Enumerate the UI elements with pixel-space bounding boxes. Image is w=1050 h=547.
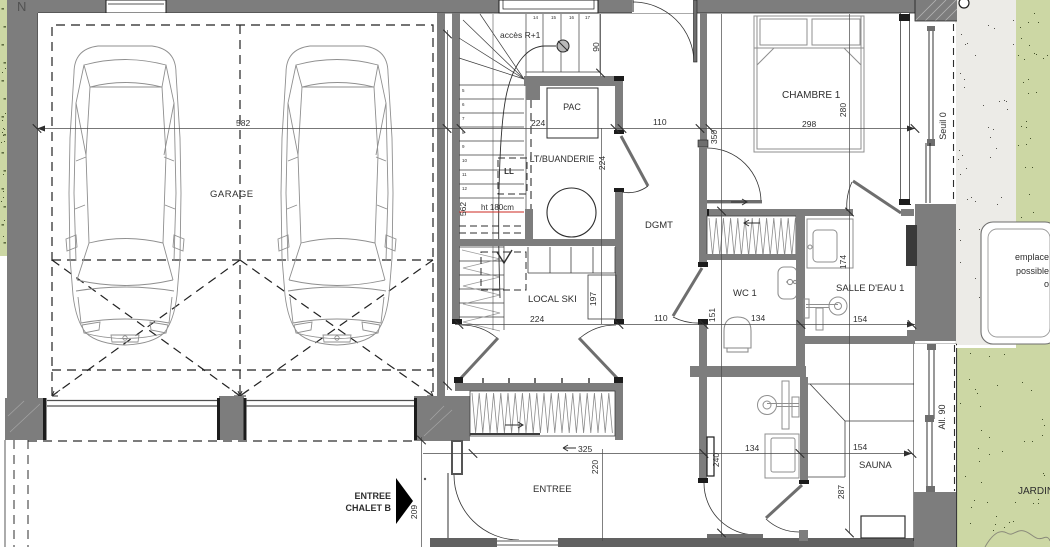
svg-text:CHALET B: CHALET B	[346, 503, 392, 513]
svg-text:220: 220	[590, 460, 600, 474]
svg-text:14: 14	[533, 15, 539, 20]
svg-text:emplace: emplace	[1015, 252, 1049, 262]
svg-text:17: 17	[585, 15, 591, 20]
svg-text:110: 110	[653, 117, 667, 127]
svg-text:15: 15	[551, 15, 557, 20]
svg-text:90: 90	[591, 42, 601, 52]
svg-text:ht 180cm: ht 180cm	[481, 203, 514, 212]
svg-text:16: 16	[569, 15, 575, 20]
svg-text:134: 134	[751, 313, 765, 323]
svg-text:10: 10	[462, 158, 468, 163]
svg-text:287: 287	[836, 485, 846, 499]
svg-text:174: 174	[838, 255, 848, 269]
svg-text:224: 224	[597, 156, 607, 170]
svg-text:LT/BUANDERIE: LT/BUANDERIE	[530, 154, 595, 164]
svg-text:SALLE D'EAU 1: SALLE D'EAU 1	[836, 283, 904, 294]
svg-text:224: 224	[531, 118, 545, 128]
svg-text:CHAMBRE 1: CHAMBRE 1	[782, 90, 841, 101]
svg-text:DGMT: DGMT	[645, 220, 673, 231]
svg-text:ENTREE: ENTREE	[354, 491, 391, 501]
svg-text:224: 224	[530, 314, 544, 324]
svg-text:LL: LL	[504, 167, 514, 176]
svg-text:possible: possible	[1016, 266, 1049, 276]
svg-text:11: 11	[462, 172, 467, 177]
svg-text:PAC: PAC	[563, 102, 581, 112]
svg-text:GARAGE: GARAGE	[210, 189, 254, 200]
svg-text:325: 325	[578, 444, 592, 454]
svg-text:197: 197	[588, 292, 598, 306]
svg-text:JARDIN: JARDIN	[1018, 486, 1050, 497]
svg-text:151: 151	[707, 308, 717, 322]
svg-text:N: N	[17, 0, 26, 14]
svg-text:All. 90: All. 90	[937, 404, 947, 429]
svg-text:134: 134	[745, 443, 759, 453]
svg-text:154: 154	[853, 314, 867, 324]
svg-text:SAUNA: SAUNA	[859, 460, 892, 471]
svg-text:accès R+1: accès R+1	[500, 30, 541, 40]
svg-text:Seuil 0: Seuil 0	[938, 112, 948, 140]
svg-text:298: 298	[802, 119, 816, 129]
svg-text:o: o	[1044, 279, 1049, 289]
svg-text:350: 350	[709, 130, 719, 144]
svg-text:154: 154	[853, 442, 867, 452]
svg-text:WC 1: WC 1	[733, 288, 757, 299]
svg-text:562: 562	[458, 202, 468, 216]
svg-text:582: 582	[236, 118, 250, 128]
svg-text:110: 110	[654, 313, 668, 323]
svg-text:ENTREE: ENTREE	[533, 484, 572, 495]
svg-text:240: 240	[711, 453, 721, 467]
svg-text:280: 280	[838, 103, 848, 117]
svg-text:LOCAL SKI: LOCAL SKI	[528, 294, 577, 305]
svg-text:12: 12	[462, 186, 468, 191]
svg-text:209: 209	[409, 505, 419, 519]
